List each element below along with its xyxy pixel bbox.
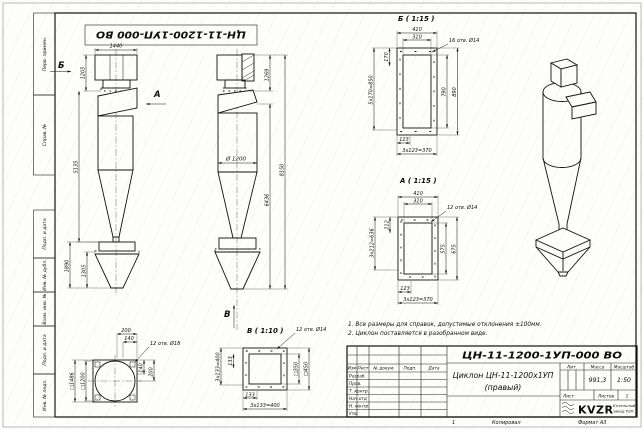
- detail-v-holes: 12 отв. Ø14: [296, 326, 326, 333]
- detail-b-dim-410: 410: [412, 27, 422, 33]
- detail-a-dim-310: 310: [413, 199, 423, 205]
- bottom-dim-140-top: 140: [124, 336, 134, 342]
- detail-v-dim-350: □350: [294, 362, 300, 376]
- detail-a: А ( 1:15 ) 410 310 12 отв. Ø14 212 3х212…: [370, 177, 478, 305]
- row-nkontr: Н. контр.: [349, 404, 370, 410]
- lit-label: Лит.: [566, 365, 577, 371]
- detail-b-dim-5x170: 5х170=850: [369, 75, 375, 104]
- col-izm: Изм: [348, 366, 357, 372]
- row-razrab: Разраб.: [349, 374, 366, 380]
- frame-label-podp-data-1: Подп. и дата: [42, 218, 48, 249]
- detail-v: В ( 1:10 ) 12 отв. Ø14 □350 □450 133 3х1…: [216, 326, 327, 411]
- col-dokum: № докум.: [372, 366, 394, 372]
- massa-label: Масса: [591, 365, 605, 371]
- dim-5135: 5135: [74, 161, 80, 174]
- view-label-v: В: [224, 310, 230, 320]
- detail-b-dim-790: 790: [442, 87, 448, 97]
- sheet-small-number: 1: [452, 420, 455, 426]
- detail-b-dim-3x123: 3х123=370: [402, 148, 431, 154]
- logo-caption-1: Котельный: [613, 403, 636, 408]
- detail-b: Б ( 1:15 ) 410 310 16 отв. Ø14 170 5х170…: [369, 15, 480, 156]
- row-prov: Пров.: [349, 381, 362, 387]
- frame-label-inv-dubl: Инв. № дубл.: [42, 259, 48, 290]
- detail-a-holes: 12 отв. Ø14: [447, 204, 477, 211]
- detail-b-dim-170: 170: [384, 52, 390, 62]
- listov-label: Листов: [597, 394, 615, 400]
- logo-caption-2: завод РЭП: [613, 409, 634, 414]
- detail-v-dim-3x133-bottom: 3х133=400: [250, 403, 279, 409]
- doc-number: ЦН-11-1200-1УП-000 ВО: [462, 351, 623, 362]
- col-data: Дата: [427, 366, 439, 372]
- dim-d1200: Ø 1200: [225, 156, 247, 163]
- detail-b-dim-890: 890: [452, 87, 458, 97]
- detail-v-dim-450: □450: [304, 362, 310, 376]
- detail-a-dim-675: 675: [452, 244, 458, 254]
- detail-b-title: Б ( 1:15 ): [398, 15, 434, 23]
- col-podp: Подп.: [403, 366, 416, 372]
- copied-label: Копировал: [492, 420, 521, 426]
- detail-v-dim-133-bottom: 133: [245, 393, 255, 399]
- dim-1890: 1890: [65, 260, 71, 273]
- stamp-number: ЦН-11-1200-1УП-000 ВО: [95, 29, 246, 40]
- detail-a-dim-3x212: 3х212=636: [370, 228, 376, 257]
- row-utv: Утв.: [349, 411, 358, 417]
- massa-value: 991,3: [589, 377, 607, 384]
- bottom-margin-labels: 1 Копировал Формат А3: [452, 420, 606, 426]
- detail-a-dim-123: 123: [400, 286, 410, 292]
- title-block: ЦН-11-1200-1УП-000 ВО Изм Лист № докум. …: [347, 346, 637, 417]
- doc-title-line2: (правый): [485, 383, 522, 392]
- front-view: 1440 1205 5135 1890 1305 Б А: [50, 44, 166, 297]
- view-label-a: А: [153, 90, 161, 100]
- note-line-1: 1. Все размеры для справок, допустимые о…: [348, 322, 542, 328]
- dim-1269: 1269: [265, 69, 271, 82]
- detail-v-title: В ( 1:10 ): [247, 327, 283, 335]
- drawing-sheet: Перв. примен. Справ. № Подп. и дата Инв.…: [0, 0, 644, 430]
- dim-1305: 1305: [82, 265, 88, 278]
- detail-b-dim-310: 310: [412, 35, 422, 41]
- frame-label-sprav-no: Справ. №: [42, 124, 48, 147]
- dim-1440: 1440: [110, 44, 123, 50]
- row-tkontr: Т. контр.: [349, 389, 369, 395]
- doc-title-line1: Циклон ЦН-11-1200х1УП: [453, 371, 554, 380]
- row-nachotd: Нач.отд: [349, 396, 367, 402]
- bottom-dim-200-top: 200: [121, 328, 131, 334]
- col-list: Лист: [357, 366, 369, 372]
- bottom-holes: 12 отв. Ø18: [150, 340, 180, 347]
- detail-b-holes: 16 отв. Ø14: [449, 37, 479, 44]
- view-label-b: Б: [58, 61, 65, 71]
- frame-label-podp-data-2: Подп. и дата: [42, 334, 48, 365]
- notes: 1. Все размеры для справок, допустимые о…: [348, 322, 542, 337]
- detail-b-dim-123: 123: [399, 137, 409, 143]
- listov-value: 1: [626, 394, 629, 400]
- detail-v-dim-133-left: 133: [228, 356, 234, 366]
- note-line-2: 2. Циклон поставляется в разобранном вид…: [348, 331, 488, 337]
- bottom-dim-140-right: 140: [139, 363, 145, 373]
- kvzr-logo: KVZR Котельный завод РЭП: [562, 403, 636, 417]
- frame-label-vzam-inv: Взам. инв. №: [42, 293, 48, 324]
- detail-a-dim-575: 575: [441, 244, 447, 254]
- frame-label-inv-podl: Инв. № подл.: [42, 379, 48, 411]
- bottom-view: 200 140 12 отв. Ø18 □1486 □1200 140 200: [70, 328, 181, 407]
- dim-8150: 8150: [280, 164, 286, 177]
- sheet-frame: [3, 3, 641, 427]
- format-label: Формат А3: [578, 420, 606, 426]
- isometric-view: [536, 59, 596, 276]
- bottom-dim-1486: □1486: [70, 372, 76, 389]
- detail-a-dim-410: 410: [413, 191, 423, 197]
- masshtab-label: Масштаб: [614, 365, 635, 371]
- dim-6436: 6436: [265, 194, 271, 207]
- list-label: Лист: [562, 394, 574, 400]
- bottom-dim-200-right: 200: [149, 367, 155, 377]
- bottom-dim-1200: □1200: [81, 372, 87, 389]
- left-frame-strip: Перв. примен. Справ. № Подп. и дата Инв.…: [34, 13, 56, 417]
- detail-v-dim-3x133-left: 3х133=400: [216, 352, 222, 381]
- frame-label-perv-primen: Перв. примен.: [42, 37, 48, 72]
- detail-a-dim-212: 212: [385, 220, 391, 230]
- dim-1205: 1205: [81, 67, 87, 80]
- masshtab-value: 1:50: [617, 377, 631, 384]
- logo-text: KVZR: [578, 404, 614, 417]
- side-view: Ø 1200 1269 6436 8150 В: [215, 49, 288, 330]
- drawing-svg: Перв. примен. Справ. № Подп. и дата Инв.…: [0, 0, 644, 430]
- detail-a-dim-3x123: 3х123=370: [403, 297, 432, 303]
- stamp-box: ЦН-11-1200-1УП-000 ВО: [85, 25, 257, 45]
- detail-a-title: А ( 1:15 ): [399, 177, 437, 185]
